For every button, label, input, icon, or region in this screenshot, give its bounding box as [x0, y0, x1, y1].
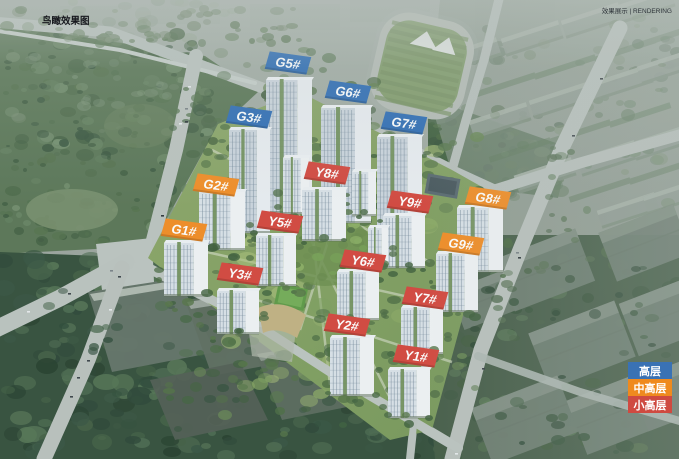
svg-text:高层: 高层 [639, 364, 661, 378]
svg-text:鸟瞰效果图: 鸟瞰效果图 [42, 15, 90, 27]
svg-text:中高层: 中高层 [634, 381, 667, 395]
svg-text:效果展示 | RENDERING: 效果展示 | RENDERING [602, 6, 672, 15]
svg-text:小高层: 小高层 [633, 398, 667, 412]
